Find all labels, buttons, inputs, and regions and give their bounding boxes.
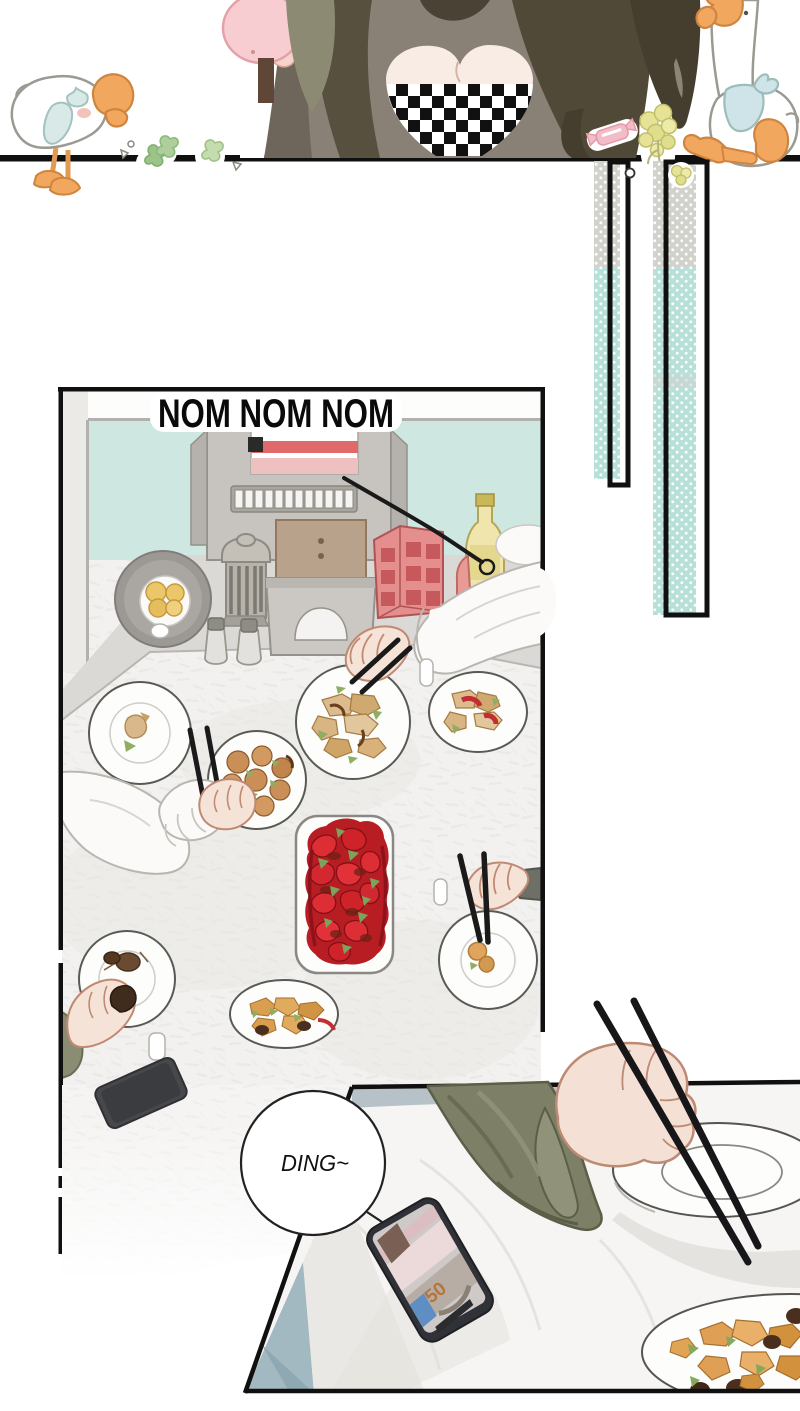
svg-text:NOM NOM NOM: NOM NOM NOM <box>158 392 394 436</box>
svg-text:DING~: DING~ <box>281 1150 349 1176</box>
